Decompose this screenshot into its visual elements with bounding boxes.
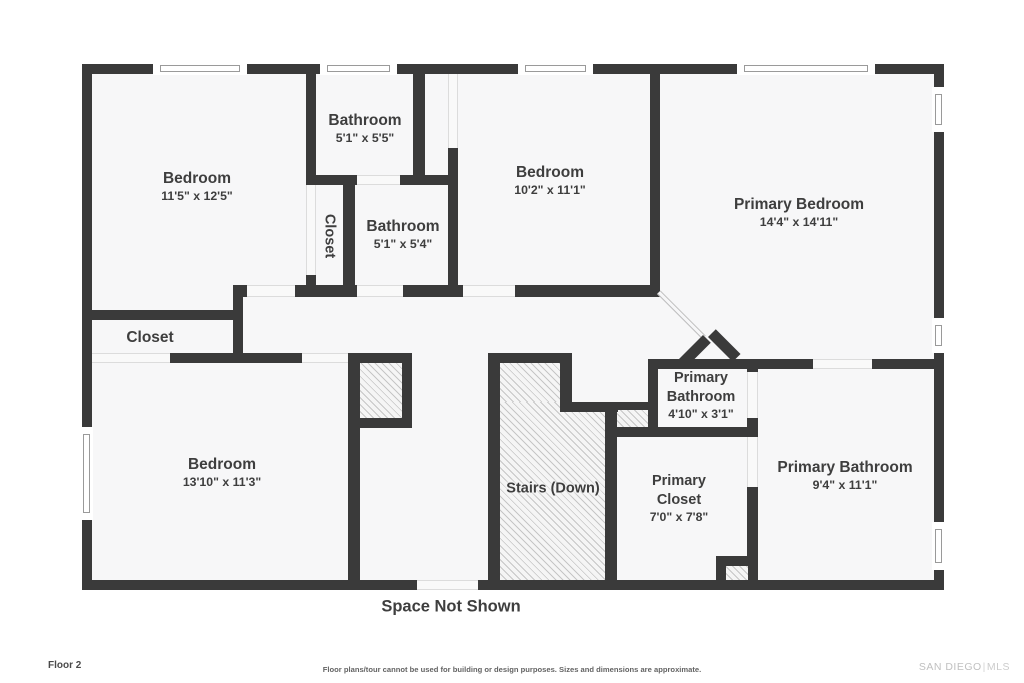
- hatched-area: [726, 566, 748, 580]
- door-opening: [302, 353, 348, 363]
- wall: [295, 285, 357, 297]
- room-dims: 4'10" x 3'1": [651, 407, 751, 423]
- wall: [413, 74, 425, 175]
- wall: [170, 353, 302, 363]
- room-label-stairs: Stairs (Down): [506, 480, 599, 499]
- door-opening: [247, 285, 295, 297]
- window: [737, 62, 875, 75]
- wall: [233, 285, 243, 363]
- room-label-bedroom-mid: Bedroom 10'2" x 11'1": [514, 163, 586, 199]
- wall: [402, 353, 412, 428]
- wall: [82, 310, 233, 320]
- window-glass-line: [327, 65, 390, 72]
- disclaimer-text: Floor plans/tour cannot be used for buil…: [323, 665, 701, 674]
- window: [932, 318, 945, 353]
- room-label-closet-vertical: Closet: [320, 214, 339, 258]
- wall: [82, 64, 92, 427]
- wall: [650, 74, 660, 297]
- brand-name: SAN DIEGO: [919, 661, 982, 673]
- room-dims: 5'1" x 5'5": [328, 131, 401, 147]
- window-glass-line: [935, 325, 942, 346]
- window: [320, 62, 397, 75]
- door-opening: [813, 359, 872, 369]
- wall: [403, 285, 463, 297]
- window-glass-line: [160, 65, 240, 72]
- wall: [306, 175, 357, 185]
- room-name: Primary Bedroom: [734, 195, 864, 215]
- room-dims: 7'0" x 7'8": [634, 510, 724, 526]
- room-label-bathroom-mid: Bathroom 5'1" x 5'4": [366, 217, 439, 253]
- hatched-area: [500, 363, 560, 402]
- window: [153, 62, 247, 75]
- wall: [306, 74, 316, 175]
- room-name: Primary Closet: [634, 472, 724, 510]
- wall: [716, 566, 726, 580]
- wall: [747, 487, 758, 556]
- room-dims: 13'10" x 11'3": [183, 475, 261, 491]
- room-name: Primary Bathroom: [777, 458, 912, 478]
- wall: [478, 580, 944, 590]
- room-label-primary-bedroom: Primary Bedroom 14'4" x 14'11": [734, 195, 864, 231]
- wall: [872, 359, 934, 369]
- wall: [934, 64, 944, 87]
- room-dims: 5'1" x 5'4": [366, 237, 439, 253]
- wall: [748, 566, 758, 580]
- wall: [448, 148, 458, 297]
- window-glass-line: [83, 434, 90, 513]
- window: [932, 87, 945, 132]
- room-name: Bathroom: [328, 111, 401, 131]
- wall: [934, 353, 944, 522]
- wall: [648, 359, 813, 369]
- room-name: Stairs (Down): [506, 480, 599, 499]
- wall: [617, 402, 648, 410]
- wall: [934, 570, 944, 590]
- room-name: Bedroom: [161, 169, 233, 189]
- room-name: Bathroom: [366, 217, 439, 237]
- room-name: Bedroom: [183, 455, 261, 475]
- wall: [605, 427, 747, 437]
- floorplan-canvas: Bedroom 11'5" x 12'5" Bathroom 5'1" x 5'…: [0, 0, 1024, 683]
- window: [80, 427, 93, 520]
- room-label-primary-bathroom: Primary Bathroom 9'4" x 11'1": [777, 458, 912, 494]
- door-opening: [448, 74, 458, 148]
- hatched-area: [617, 410, 650, 427]
- wall: [343, 185, 355, 297]
- room-dims: 14'4" x 14'11": [734, 215, 864, 231]
- wall: [82, 520, 92, 590]
- mls-brand-logo: SAN DIEGO|MLS: [919, 661, 1010, 673]
- window-glass-line: [935, 94, 942, 125]
- wall: [400, 175, 450, 185]
- wall: [82, 580, 417, 590]
- window-glass-line: [744, 65, 868, 72]
- window-glass-line: [935, 529, 942, 563]
- room-name: Primary Bathroom: [651, 369, 751, 407]
- room-name: Closet: [320, 214, 339, 258]
- room-label-primary-bathroom-small: Primary Bathroom 4'10" x 3'1": [651, 369, 751, 423]
- wall: [360, 418, 412, 428]
- room-label-primary-closet: Primary Closet 7'0" x 7'8": [634, 472, 724, 526]
- floor-number-label: Floor 2: [48, 660, 81, 671]
- wall: [488, 360, 500, 590]
- wall: [82, 64, 153, 74]
- room-name: Bedroom: [514, 163, 586, 183]
- door-opening: [357, 175, 400, 185]
- door-opening: [357, 285, 403, 297]
- room-label-closet-left: Closet: [126, 328, 173, 348]
- room-dims: 11'5" x 12'5": [161, 189, 233, 205]
- wall: [716, 556, 758, 566]
- room-dims: 10'2" x 11'1": [514, 183, 586, 199]
- wall: [397, 64, 518, 74]
- wall: [593, 64, 737, 74]
- door-opening: [306, 185, 316, 275]
- door-opening: [92, 353, 170, 363]
- window-glass-line: [525, 65, 586, 72]
- wall: [934, 132, 944, 318]
- window: [518, 62, 593, 75]
- hatched-area: [360, 363, 402, 418]
- room-label-bathroom-top: Bathroom 5'1" x 5'5": [328, 111, 401, 147]
- room-label-bedroom-bottom-left: Bedroom 13'10" x 11'3": [183, 455, 261, 491]
- door-opening: [417, 580, 478, 590]
- door-opening: [463, 285, 515, 297]
- door-opening: [747, 437, 758, 487]
- space-not-shown-label: Space Not Shown: [381, 598, 520, 617]
- window: [932, 522, 945, 570]
- wall: [247, 64, 320, 74]
- room-name: Closet: [126, 328, 173, 348]
- brand-suffix: MLS: [987, 661, 1010, 673]
- room-label-bedroom-top-left: Bedroom 11'5" x 12'5": [161, 169, 233, 205]
- room-dims: 9'4" x 11'1": [777, 478, 912, 494]
- wall: [348, 353, 360, 590]
- wall: [515, 285, 657, 297]
